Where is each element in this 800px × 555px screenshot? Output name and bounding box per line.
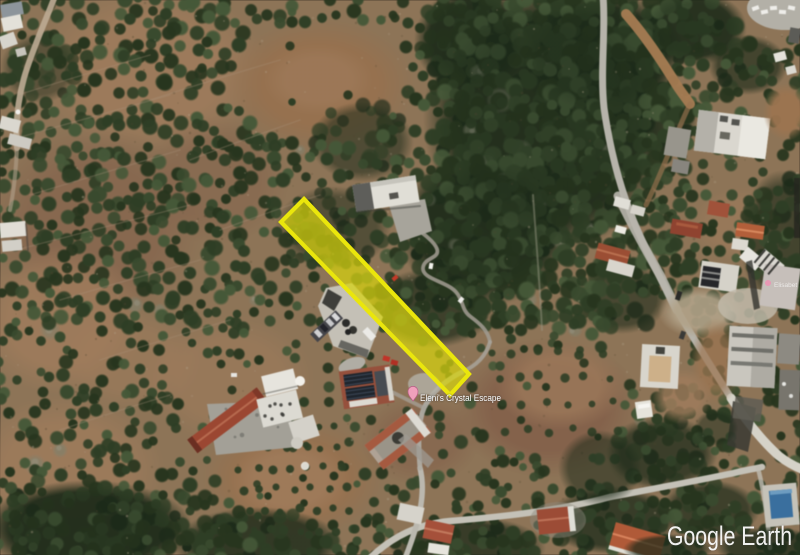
svg-text:Elisabet: Elisabet	[774, 282, 797, 289]
svg-text:Eleni's Crystal Escape: Eleni's Crystal Escape	[420, 393, 501, 403]
svg-text:Google Earth: Google Earth	[667, 521, 792, 551]
